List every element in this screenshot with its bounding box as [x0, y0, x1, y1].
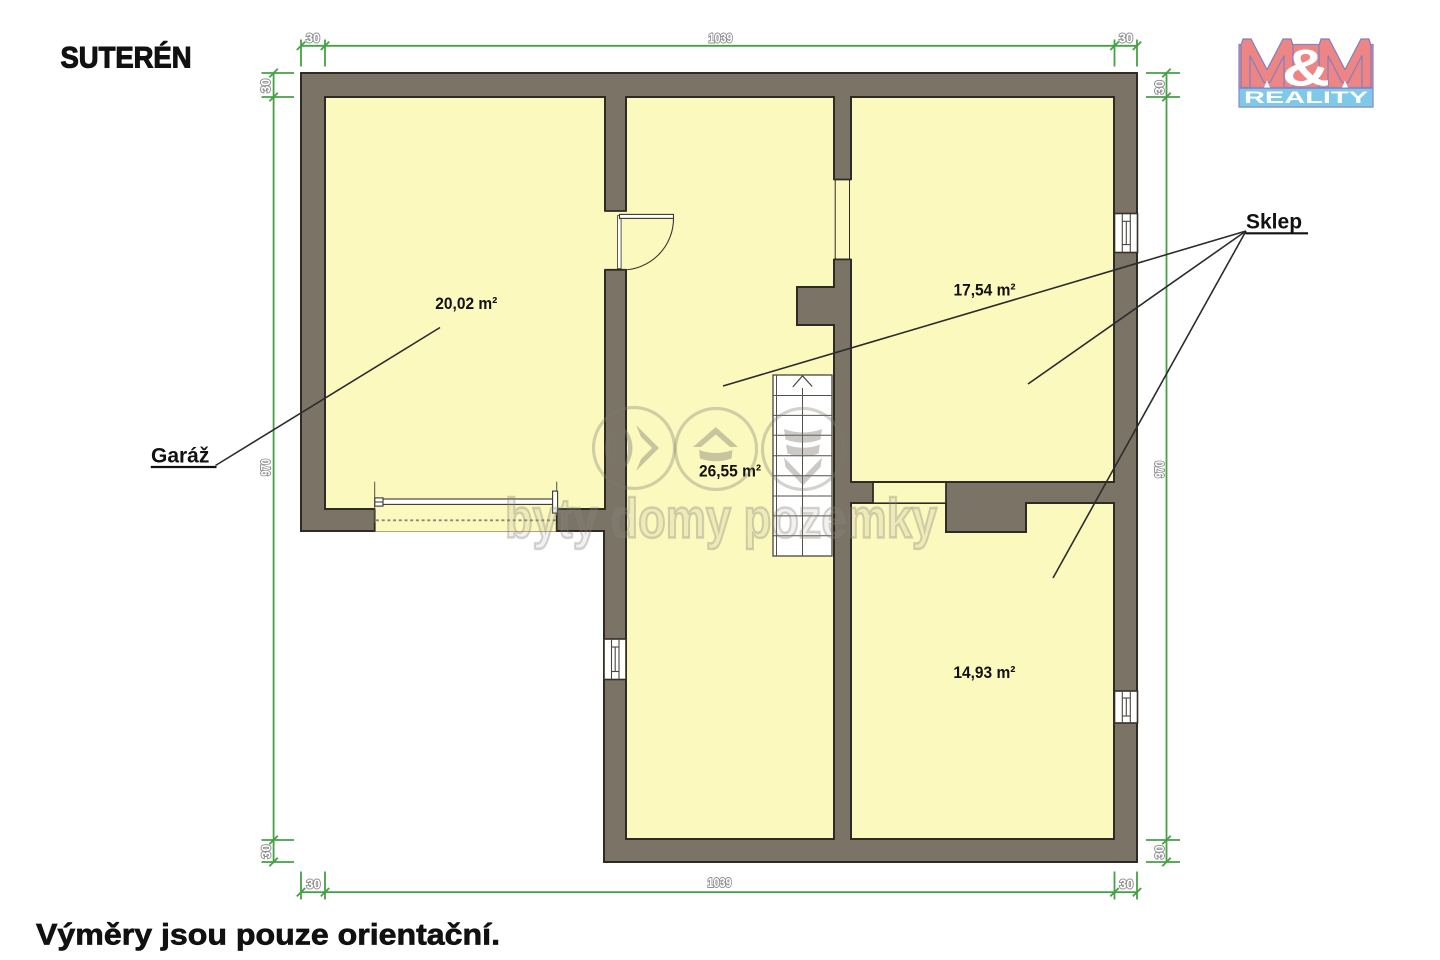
- svg-text:Výměry jsou pouze orientační.: Výměry jsou pouze orientační.: [36, 919, 500, 952]
- svg-text:30: 30: [306, 32, 320, 46]
- svg-text:1039: 1039: [709, 32, 733, 46]
- svg-text:30: 30: [1119, 877, 1133, 891]
- svg-text:17,54 m²: 17,54 m²: [954, 282, 1016, 300]
- svg-text:byty domy pozemky: byty domy pozemky: [505, 487, 937, 550]
- svg-text:30: 30: [307, 877, 321, 891]
- svg-text:30: 30: [1153, 80, 1167, 94]
- svg-text:30: 30: [259, 79, 273, 93]
- svg-text:30: 30: [260, 845, 274, 859]
- svg-text:REALITY: REALITY: [1244, 88, 1369, 107]
- svg-text:SUTERÉN: SUTERÉN: [61, 41, 192, 75]
- svg-text:970: 970: [259, 459, 273, 476]
- svg-text:30: 30: [1153, 845, 1167, 859]
- svg-text:20,02 m²: 20,02 m²: [435, 295, 497, 313]
- svg-text:1039: 1039: [708, 876, 732, 890]
- svg-text:Sklep: Sklep: [1246, 211, 1302, 234]
- svg-text:Garáž: Garáž: [151, 445, 209, 468]
- svg-text:970: 970: [1153, 461, 1167, 478]
- svg-text:14,93 m²: 14,93 m²: [953, 664, 1015, 682]
- svg-text:30: 30: [1119, 32, 1133, 46]
